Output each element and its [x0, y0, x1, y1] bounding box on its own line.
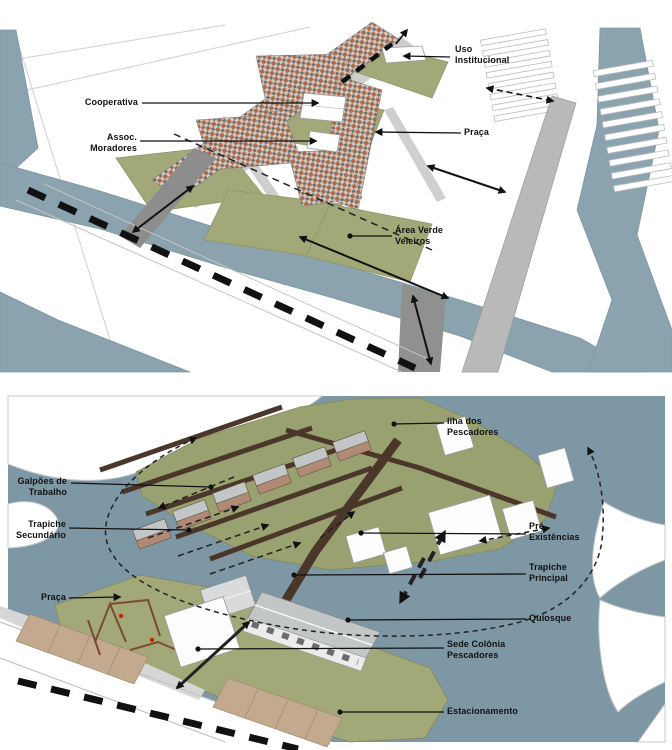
- label-praca-top: Praça: [464, 127, 489, 138]
- label-line: Veleiros: [395, 236, 443, 247]
- label-sede-colonia: Sede Colônia Pescadores: [447, 639, 505, 662]
- label-galpoes-de-trabalho: Galpões de Trabalho: [17, 476, 67, 499]
- site-diagram: Uso Institucional Cooperativa Assoc. Mor…: [0, 0, 672, 750]
- label-line: Cooperativa: [85, 97, 138, 108]
- label-trapiche-secundario: Trapiche Secundário: [16, 519, 66, 542]
- label-assoc-moradores: Assoc. Moradores: [90, 132, 137, 155]
- label-line: Praça: [41, 592, 66, 603]
- canal-lower-left: [0, 292, 190, 372]
- label-cooperativa: Cooperativa: [85, 97, 138, 108]
- label-line: Pré: [529, 521, 580, 532]
- label-line: Galpões de: [17, 476, 67, 487]
- label-ilha-dos-pescadores: Ilha dos Pescadores: [447, 416, 499, 439]
- label-line: Uso: [455, 44, 509, 55]
- label-uso-institucional: Uso Institucional: [455, 44, 509, 67]
- label-line: Sede Colônia: [447, 639, 505, 650]
- label-line: Estacionamento: [447, 706, 518, 717]
- label-trapiche-principal: Trapiche Principal: [529, 562, 568, 585]
- label-line: Trabalho: [17, 487, 67, 498]
- label-line: Trapiche: [16, 519, 66, 530]
- label-line: Área Verde: [395, 225, 443, 236]
- label-area-verde: Área Verde Veleiros: [395, 225, 443, 248]
- top-panel-illustration: [0, 22, 672, 372]
- label-line: Praça: [464, 127, 489, 138]
- label-line: Quiosque: [529, 613, 571, 624]
- canal-upper-left: [0, 30, 38, 173]
- label-line: Moradores: [90, 143, 137, 154]
- label-line: Principal: [529, 573, 568, 584]
- label-line: Ilha dos: [447, 416, 499, 427]
- label-line: Institucional: [455, 55, 509, 66]
- leader-praca-top: [376, 132, 461, 133]
- cooperativa-building: [300, 93, 346, 122]
- label-line: Pescadores: [447, 427, 499, 438]
- label-line: Secundário: [16, 530, 66, 541]
- label-line: Pescadores: [447, 650, 505, 661]
- diagram-canvas: [0, 0, 672, 750]
- label-line: Trapiche: [529, 562, 568, 573]
- label-quiosque: Quiosque: [529, 613, 571, 624]
- label-line: Existências: [529, 532, 580, 543]
- label-estacionamento: Estacionamento: [447, 706, 518, 717]
- label-pre-existencias: Pré Existências: [529, 521, 580, 544]
- label-praca-bottom: Praça: [41, 592, 66, 603]
- label-line: Assoc.: [90, 132, 137, 143]
